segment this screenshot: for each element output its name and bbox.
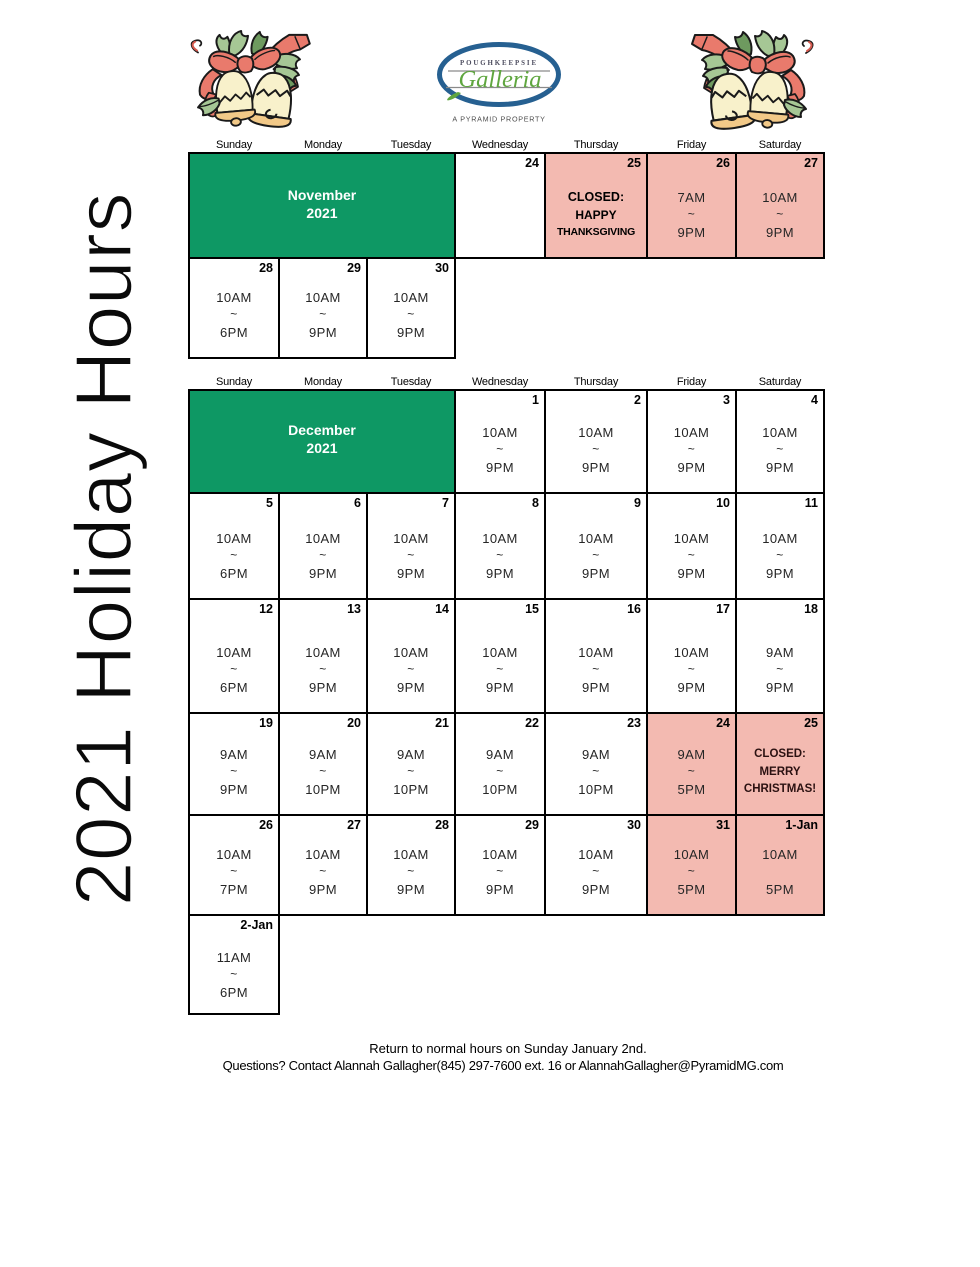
svg-text:Galleria: Galleria (458, 66, 541, 93)
svg-text:A PYRAMID PROPERTY: A PYRAMID PROPERTY (452, 115, 545, 124)
